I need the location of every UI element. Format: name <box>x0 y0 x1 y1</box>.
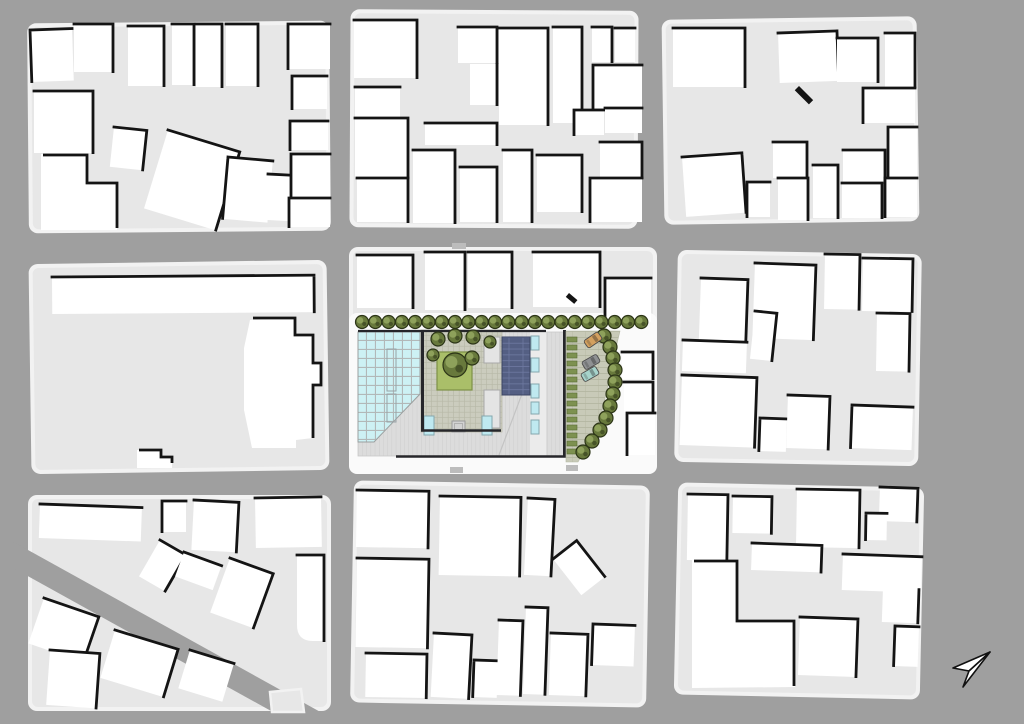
building-footprint <box>882 587 919 624</box>
plan-root <box>0 0 1024 724</box>
building-footprint <box>424 251 467 311</box>
tree-symbol <box>489 316 502 329</box>
building-footprint <box>471 659 499 699</box>
building-footprint <box>536 154 584 213</box>
tree-symbol <box>462 316 475 329</box>
tree-symbol <box>582 316 595 329</box>
building-footprint <box>573 109 606 136</box>
hedge-strip <box>567 361 577 366</box>
roof-skylight <box>531 384 539 398</box>
hedge-strip <box>567 417 577 422</box>
hedge-strip <box>567 369 577 374</box>
tree-symbol <box>409 316 422 329</box>
building-footprint <box>864 512 888 541</box>
hedge-strip <box>567 385 577 390</box>
building-footprint <box>424 122 499 146</box>
city-plan-canvas <box>0 0 1024 724</box>
building-footprint <box>849 404 914 451</box>
building-footprint <box>823 253 862 311</box>
tree-symbol <box>608 316 621 329</box>
tree-symbol <box>449 316 462 329</box>
tree-symbol <box>435 316 448 329</box>
building-footprint <box>887 126 919 178</box>
tree-symbol <box>484 336 496 348</box>
building-footprint <box>623 381 655 413</box>
building-footprint <box>523 497 557 577</box>
building-footprint <box>412 149 457 224</box>
building-footprint <box>841 182 884 219</box>
hedge-strip <box>567 377 577 382</box>
building-footprint <box>532 251 602 308</box>
building-footprint <box>591 26 614 63</box>
building-footprint <box>354 87 402 120</box>
building-footprint <box>746 181 772 218</box>
building-footprint <box>289 120 330 151</box>
building-footprint <box>161 500 188 533</box>
tree-symbol <box>568 316 581 329</box>
hedge-strip <box>567 401 577 406</box>
building-footprint <box>498 27 550 126</box>
building-footprint <box>225 23 260 87</box>
building-footprint <box>437 495 522 577</box>
tree-symbol <box>595 316 608 329</box>
building-footprint <box>750 542 824 574</box>
tree-symbol <box>382 316 395 329</box>
building-footprint <box>195 23 224 88</box>
building-footprint <box>599 141 644 179</box>
building-footprint <box>589 177 644 223</box>
tree-symbol <box>466 330 480 344</box>
building-footprint <box>772 141 809 179</box>
building-footprint <box>470 63 497 106</box>
building-footprint <box>547 632 589 697</box>
building-footprint <box>777 177 810 221</box>
building-footprint <box>127 25 166 87</box>
building-footprint <box>812 164 840 219</box>
building-footprint <box>502 149 534 223</box>
tree-symbol <box>475 316 488 329</box>
tree-symbol <box>465 351 479 365</box>
building-footprint <box>522 606 550 696</box>
building-footprint <box>108 126 148 172</box>
hedge-strip <box>567 441 577 446</box>
tree-symbol <box>356 316 369 329</box>
building-footprint <box>626 412 657 456</box>
building-footprint <box>33 90 95 154</box>
building-footprint <box>457 26 499 64</box>
roof-skylight <box>531 336 539 350</box>
building-footprint <box>681 340 749 373</box>
building-footprint <box>37 504 143 542</box>
tree-symbol <box>422 316 435 329</box>
building-footprint <box>862 87 917 124</box>
tree-symbol <box>431 332 445 346</box>
building-footprint <box>467 251 514 309</box>
tree-symbol <box>443 353 467 377</box>
building-footprint <box>875 312 912 373</box>
building-footprint <box>697 277 749 344</box>
building-footprint <box>621 351 655 380</box>
building-footprint <box>884 177 919 218</box>
building-footprint <box>51 274 316 315</box>
building-footprint <box>685 493 729 562</box>
hedge-strip <box>567 353 577 358</box>
hedge-strip <box>567 425 577 430</box>
tree-symbol <box>635 316 648 329</box>
tree-symbol <box>427 349 439 361</box>
building-footprint <box>190 499 240 553</box>
building-footprint <box>356 254 415 309</box>
tree-symbol <box>448 329 462 343</box>
tree-symbol <box>576 445 590 459</box>
tree-symbol <box>502 316 515 329</box>
solar-panel-array <box>502 337 530 395</box>
hedge-strip <box>567 409 577 414</box>
building-footprint <box>364 652 429 699</box>
building-footprint <box>355 489 431 549</box>
building-footprint <box>785 394 832 451</box>
building-footprint <box>797 616 860 678</box>
building-footprint <box>672 27 747 88</box>
building-footprint <box>731 495 773 535</box>
curb-cut-tab <box>450 467 463 473</box>
hedge-strip <box>567 345 577 350</box>
building-footprint <box>254 497 324 548</box>
curb-cut-tab <box>452 243 466 249</box>
tree-symbol <box>555 316 568 329</box>
roof-skylight <box>482 416 492 435</box>
building-footprint <box>296 554 326 642</box>
building-footprint <box>354 117 410 179</box>
building-footprint <box>29 27 76 83</box>
tree-symbol <box>622 316 635 329</box>
building-footprint <box>777 30 841 84</box>
building-footprint <box>287 23 332 70</box>
roof-skylight <box>531 420 539 434</box>
building-footprint <box>288 197 332 228</box>
building-footprint <box>678 374 758 449</box>
building-footprint <box>590 623 636 668</box>
building-footprint <box>291 75 329 110</box>
block-fragment <box>270 689 304 712</box>
building-footprint <box>495 619 524 697</box>
tree-symbol <box>395 316 408 329</box>
building-footprint <box>356 177 410 223</box>
tree-symbol <box>515 316 528 329</box>
building-footprint <box>795 488 862 549</box>
building-footprint <box>892 625 920 668</box>
building-footprint <box>459 166 499 223</box>
building-footprint <box>290 153 332 198</box>
building-footprint <box>429 632 473 700</box>
building-footprint <box>354 557 430 649</box>
building-footprint <box>757 417 788 453</box>
roof-skylight <box>424 416 434 435</box>
roof-skylight <box>531 358 539 372</box>
building-footprint <box>73 23 115 73</box>
building-footprint <box>614 28 637 62</box>
hedge-strip <box>567 433 577 438</box>
tree-symbol <box>542 316 555 329</box>
building-footprint <box>604 108 644 133</box>
building-footprint <box>884 32 917 88</box>
curb-cut-tab <box>566 465 578 471</box>
building-footprint <box>171 23 196 86</box>
hedge-strip <box>567 393 577 398</box>
building-footprint <box>861 257 915 313</box>
building-footprint <box>353 19 419 79</box>
building-footprint <box>45 649 102 710</box>
building-footprint <box>244 318 321 448</box>
roof-skylight <box>531 402 539 414</box>
building-footprint <box>836 37 880 83</box>
building-footprint <box>592 64 644 109</box>
tree-symbol <box>369 316 382 329</box>
building-footprint <box>842 149 887 184</box>
building-footprint <box>681 152 748 218</box>
tree-symbol <box>528 316 541 329</box>
hedge-strip <box>567 337 577 342</box>
building-footprint <box>840 554 923 593</box>
